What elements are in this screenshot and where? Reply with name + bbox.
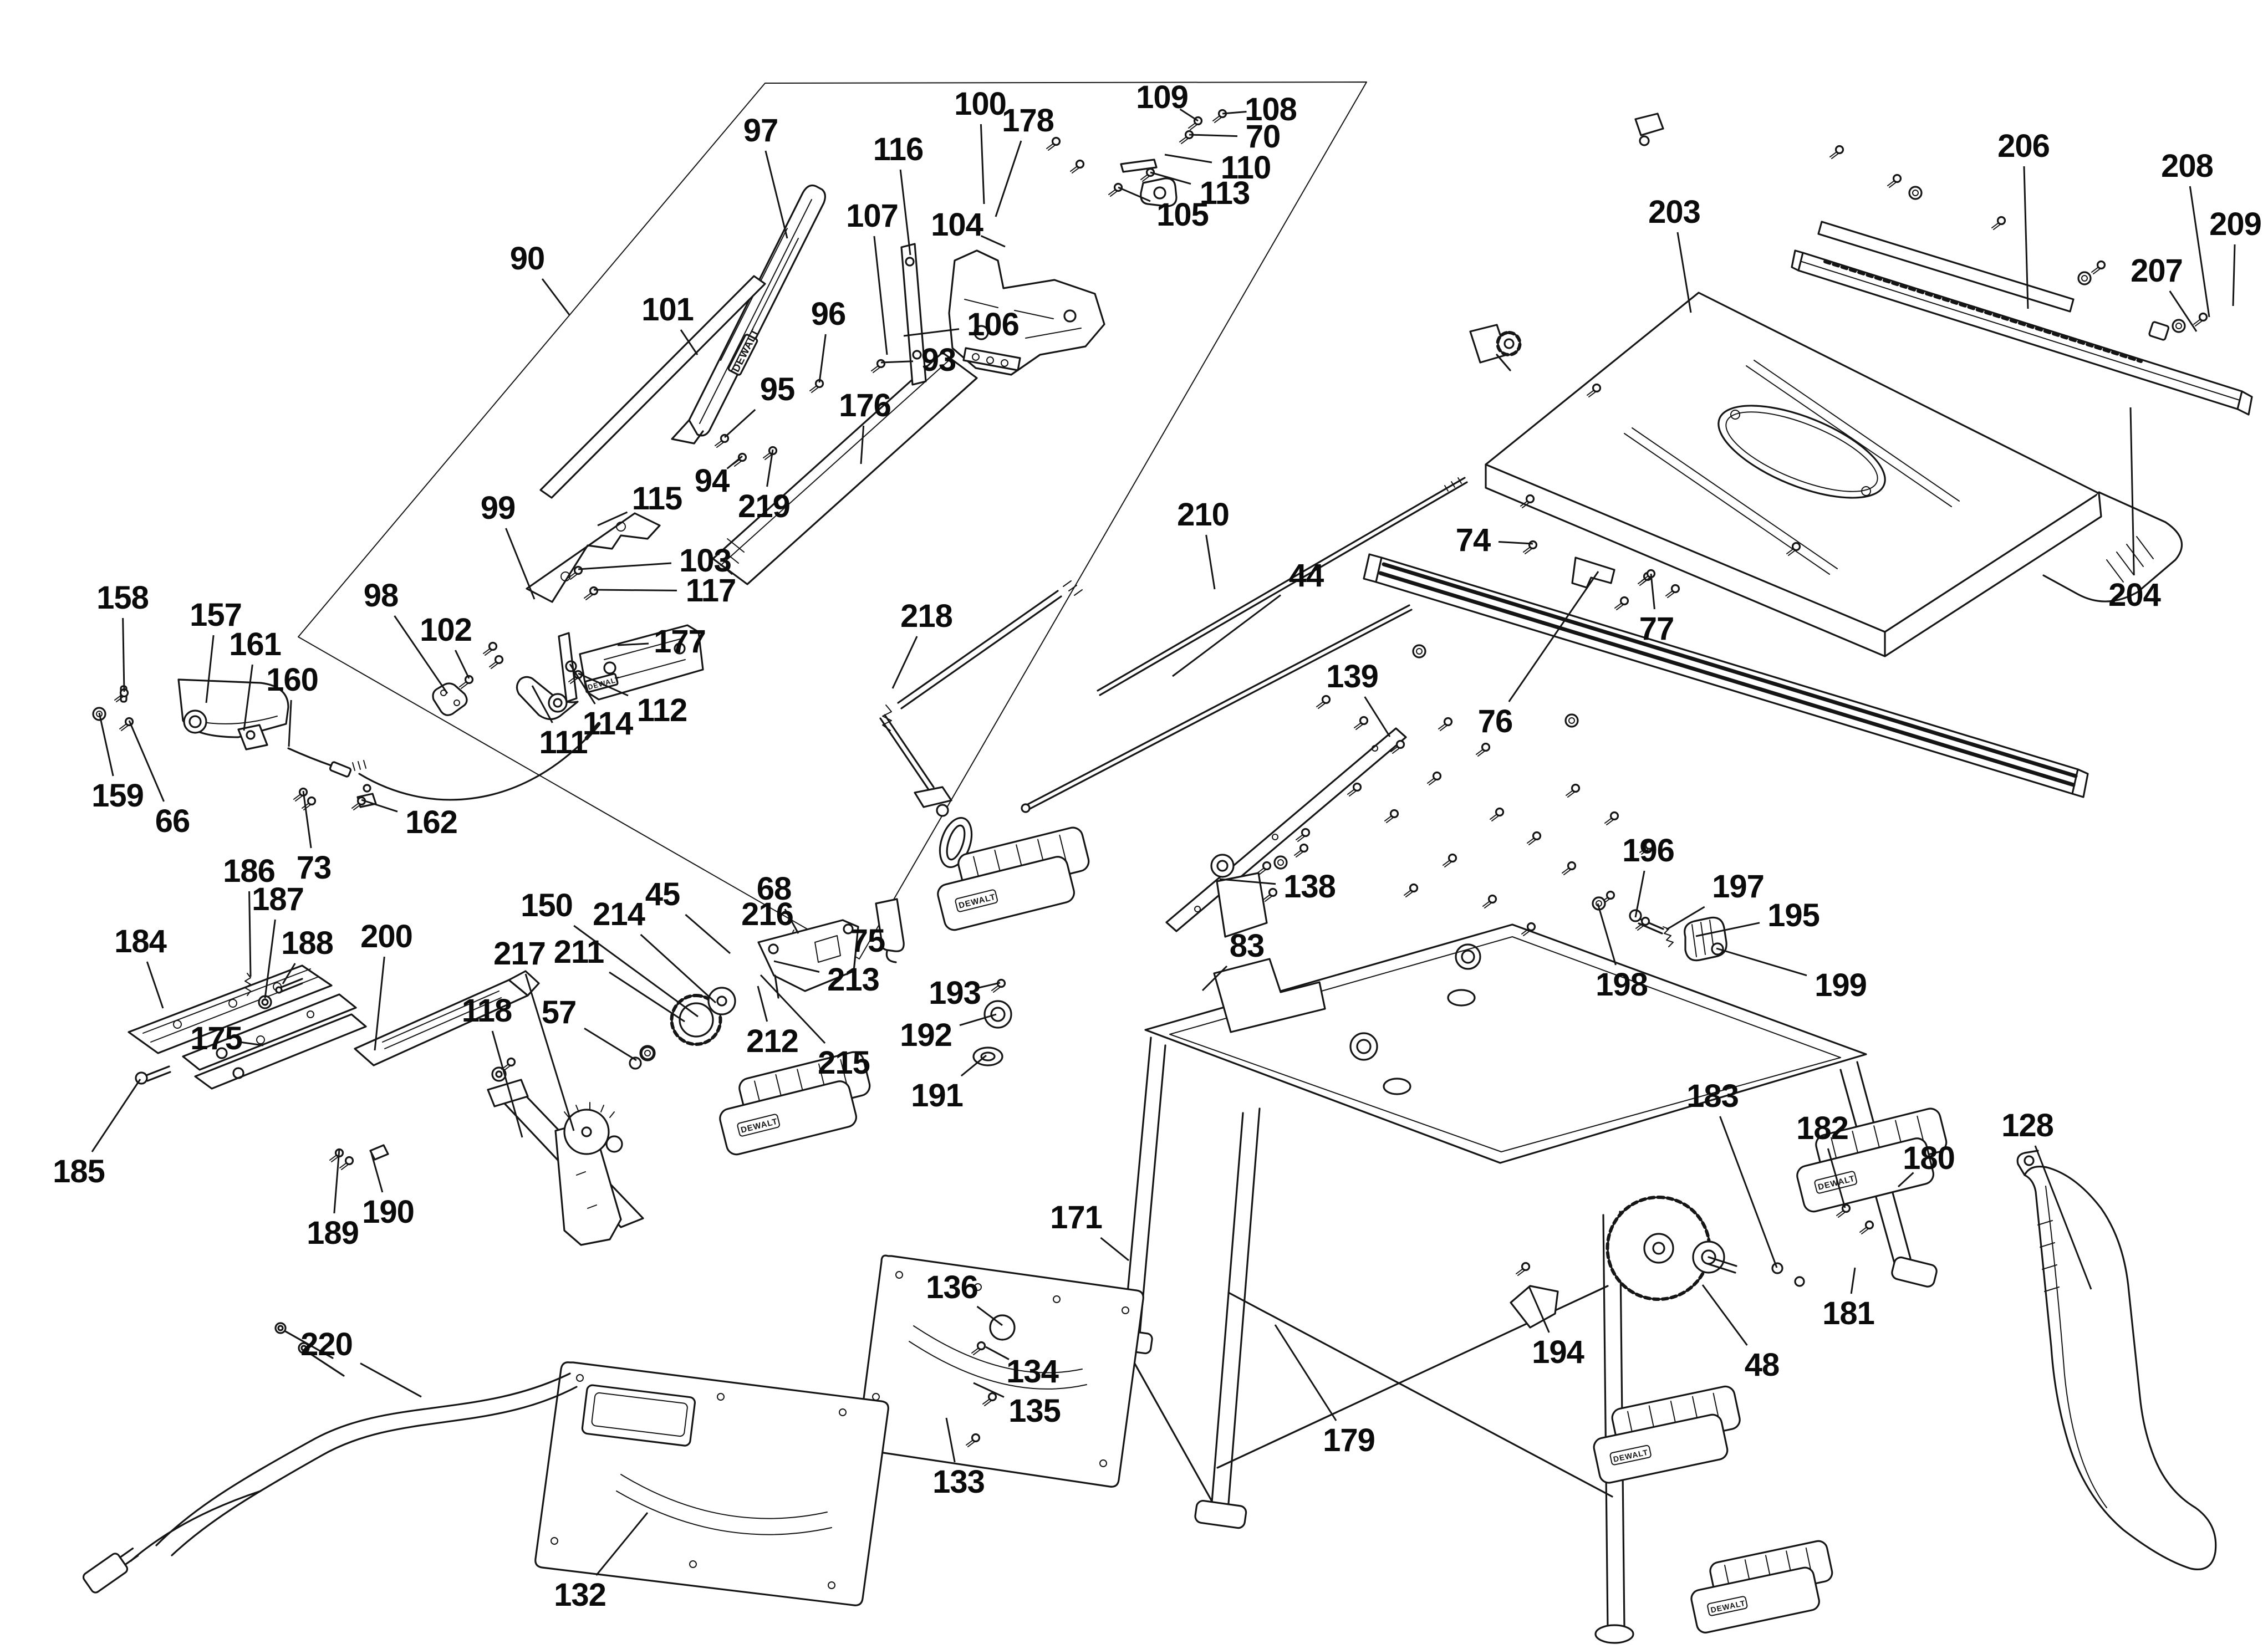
- callout-204: 204: [2108, 579, 2160, 611]
- leader-161: [244, 665, 252, 731]
- callout-192: 192: [900, 1019, 952, 1051]
- callout-158: 158: [96, 582, 149, 614]
- leader-45: [685, 915, 730, 953]
- callout-57: 57: [542, 997, 577, 1029]
- callout-95: 95: [760, 374, 795, 406]
- callout-189: 189: [307, 1217, 359, 1249]
- leader-134: [986, 1347, 1009, 1360]
- leader-103: [578, 563, 671, 569]
- callout-200: 200: [360, 921, 412, 953]
- callout-83: 83: [1230, 930, 1265, 962]
- leader-206: [2024, 166, 2028, 309]
- leader-195: [1696, 923, 1760, 936]
- leader-116: [900, 170, 910, 255]
- leader-177: [618, 644, 649, 645]
- callout-44: 44: [1289, 560, 1324, 592]
- callout-177: 177: [654, 626, 706, 658]
- leader-188: [283, 963, 295, 984]
- callout-213: 213: [827, 964, 879, 996]
- callout-208: 208: [2161, 150, 2213, 182]
- leader-218: [893, 636, 917, 688]
- callout-109: 109: [1136, 81, 1188, 114]
- callout-159: 159: [91, 780, 144, 812]
- leader-179: [1275, 1325, 1336, 1421]
- leader-115: [598, 512, 628, 525]
- callout-96: 96: [811, 298, 846, 330]
- leader-157: [206, 635, 213, 703]
- callout-135: 135: [1008, 1395, 1061, 1427]
- leader-212: [758, 986, 767, 1022]
- leader-220: [360, 1364, 421, 1397]
- leader-105: [1118, 187, 1150, 201]
- callout-136: 136: [926, 1272, 978, 1304]
- callout-175: 175: [190, 1023, 242, 1055]
- callout-198: 198: [1596, 969, 1648, 1001]
- callout-212: 212: [746, 1025, 798, 1058]
- callout-183: 183: [1686, 1080, 1739, 1112]
- callout-209: 209: [2209, 208, 2261, 241]
- callout-66: 66: [155, 805, 190, 838]
- leader-213: [774, 961, 819, 972]
- leader-183: [1720, 1116, 1777, 1268]
- leader-112: [578, 673, 628, 696]
- leader-138: [1220, 879, 1276, 884]
- leader-99: [506, 528, 534, 599]
- callout-220: 220: [300, 1329, 353, 1361]
- callout-184: 184: [114, 926, 166, 958]
- callout-188: 188: [281, 927, 333, 959]
- callout-115: 115: [632, 483, 682, 515]
- callout-93: 93: [921, 344, 956, 376]
- leader-104: [981, 236, 1006, 247]
- callout-206: 206: [1997, 130, 2050, 162]
- callout-210: 210: [1177, 499, 1229, 531]
- callout-162: 162: [405, 806, 457, 839]
- callout-187: 187: [252, 884, 304, 916]
- callout-214: 214: [593, 898, 645, 931]
- callout-219: 219: [738, 491, 790, 523]
- leader-114: [570, 664, 595, 704]
- callout-185: 185: [53, 1156, 105, 1188]
- callout-203: 203: [1648, 196, 1700, 228]
- leader-90: [542, 279, 569, 315]
- callout-104: 104: [931, 209, 983, 241]
- leader-57: [584, 1028, 636, 1060]
- leader-93: [881, 361, 913, 363]
- leader-186: [249, 891, 251, 977]
- callout-179: 179: [1323, 1425, 1375, 1457]
- leader-214: [641, 935, 716, 1003]
- callout-99: 99: [481, 492, 516, 524]
- leader-95: [725, 410, 755, 437]
- callout-48: 48: [1745, 1349, 1780, 1381]
- callout-133: 133: [932, 1466, 985, 1498]
- callout-218: 218: [900, 600, 952, 632]
- callout-118: 118: [462, 995, 512, 1027]
- leader-106: [904, 329, 959, 336]
- callout-90: 90: [510, 243, 545, 275]
- leader-107: [874, 236, 887, 355]
- callout-76: 76: [1478, 706, 1513, 738]
- callout-138: 138: [1283, 871, 1336, 903]
- callout-97: 97: [743, 115, 778, 147]
- leader-184: [147, 962, 163, 1008]
- callout-114: 114: [583, 708, 633, 740]
- leader-210: [1206, 535, 1215, 589]
- callout-107: 107: [846, 200, 898, 232]
- leader-197: [1666, 907, 1705, 930]
- leader-175: [240, 1042, 264, 1045]
- leader-187: [265, 920, 275, 998]
- leader-192: [960, 1014, 996, 1025]
- callout-106: 106: [967, 309, 1019, 341]
- callout-191: 191: [911, 1080, 963, 1112]
- leader-196: [1635, 871, 1644, 917]
- leader-194: [1529, 1286, 1549, 1333]
- leader-185: [92, 1079, 140, 1152]
- leader-193: [977, 983, 1000, 988]
- callout-197: 197: [1712, 871, 1764, 903]
- leader-176: [861, 426, 864, 464]
- leader-178: [996, 141, 1021, 217]
- leader-204: [2131, 407, 2134, 575]
- leader-219: [767, 450, 773, 487]
- leader-132: [596, 1513, 648, 1575]
- leader-lines: [0, 0, 2268, 1649]
- callout-102: 102: [420, 614, 472, 646]
- callout-180: 180: [1903, 1142, 1955, 1175]
- leader-199: [1716, 948, 1807, 976]
- leader-102: [455, 650, 469, 678]
- leader-73: [303, 791, 311, 848]
- leader-83: [1202, 966, 1227, 991]
- callout-207: 207: [2131, 255, 2183, 287]
- callout-182: 182: [1796, 1112, 1848, 1145]
- leader-97: [766, 151, 787, 238]
- leader-171: [1100, 1238, 1129, 1260]
- leader-208: [2190, 186, 2209, 317]
- leader-198: [1598, 903, 1615, 965]
- diagram-stage: DEWALT: [0, 0, 2268, 1649]
- callout-74: 74: [1456, 524, 1491, 557]
- callout-171: 171: [1050, 1202, 1102, 1234]
- leader-77: [1651, 574, 1654, 609]
- callout-176: 176: [839, 390, 891, 422]
- callout-190: 190: [362, 1196, 414, 1228]
- leader-200: [375, 957, 384, 1050]
- callout-150: 150: [521, 890, 573, 922]
- leader-70: [1189, 135, 1237, 136]
- leader-118: [492, 1031, 522, 1137]
- callout-161: 161: [229, 629, 281, 661]
- leader-181: [1851, 1268, 1855, 1294]
- leader-209: [2233, 244, 2235, 306]
- callout-94: 94: [695, 465, 730, 497]
- callout-112: 112: [637, 695, 687, 727]
- leader-135: [974, 1383, 1004, 1397]
- leader-113: [1150, 172, 1191, 184]
- callout-193: 193: [929, 977, 981, 1009]
- leader-190: [371, 1153, 383, 1192]
- callout-101: 101: [641, 294, 694, 326]
- leader-160: [289, 700, 291, 747]
- callout-132: 132: [554, 1579, 606, 1611]
- callout-139: 139: [1326, 661, 1378, 693]
- leader-74: [1499, 542, 1533, 544]
- callout-111: 111: [539, 727, 587, 759]
- callout-199: 199: [1815, 969, 1867, 1002]
- callout-160: 160: [266, 664, 318, 696]
- callout-70: 70: [1246, 121, 1281, 153]
- leader-128: [2035, 1146, 2091, 1289]
- callout-98: 98: [364, 580, 399, 612]
- callout-178: 178: [1002, 105, 1054, 137]
- leader-191: [961, 1055, 986, 1076]
- leader-158: [123, 618, 124, 692]
- leader-207: [2170, 291, 2196, 331]
- leader-117: [594, 590, 677, 590]
- leader-100: [981, 124, 984, 204]
- leader-162: [361, 800, 397, 811]
- callout-75: 75: [850, 925, 885, 957]
- leader-111: [532, 686, 552, 723]
- callout-105: 105: [1156, 199, 1209, 231]
- callout-211: 211: [554, 936, 604, 968]
- leader-48: [1703, 1285, 1747, 1345]
- leader-203: [1678, 232, 1691, 313]
- callout-73: 73: [297, 852, 332, 884]
- callout-45: 45: [645, 879, 680, 911]
- leader-133: [946, 1418, 955, 1462]
- leader-44: [1173, 595, 1281, 676]
- callout-217: 217: [493, 938, 546, 970]
- callout-194: 194: [1532, 1336, 1584, 1369]
- callout-195: 195: [1767, 900, 1820, 932]
- leader-108: [1222, 112, 1247, 114]
- leader-110: [1165, 155, 1212, 162]
- callout-117: 117: [686, 575, 736, 607]
- leader-96: [819, 334, 825, 382]
- callout-196: 196: [1622, 835, 1674, 867]
- leader-159: [99, 713, 113, 776]
- leader-136: [977, 1306, 1003, 1325]
- callout-215: 215: [818, 1047, 870, 1079]
- leader-189: [334, 1149, 339, 1213]
- callout-116: 116: [873, 134, 924, 166]
- callout-100: 100: [954, 88, 1006, 120]
- callout-216: 216: [741, 898, 793, 931]
- callout-77: 77: [1639, 613, 1674, 645]
- leader-182: [1828, 1148, 1845, 1208]
- callout-128: 128: [2001, 1110, 2053, 1142]
- leader-101: [681, 330, 697, 355]
- leader-76: [1509, 571, 1598, 702]
- leader-139: [1365, 697, 1390, 737]
- callout-134: 134: [1006, 1356, 1058, 1388]
- callout-181: 181: [1822, 1298, 1874, 1330]
